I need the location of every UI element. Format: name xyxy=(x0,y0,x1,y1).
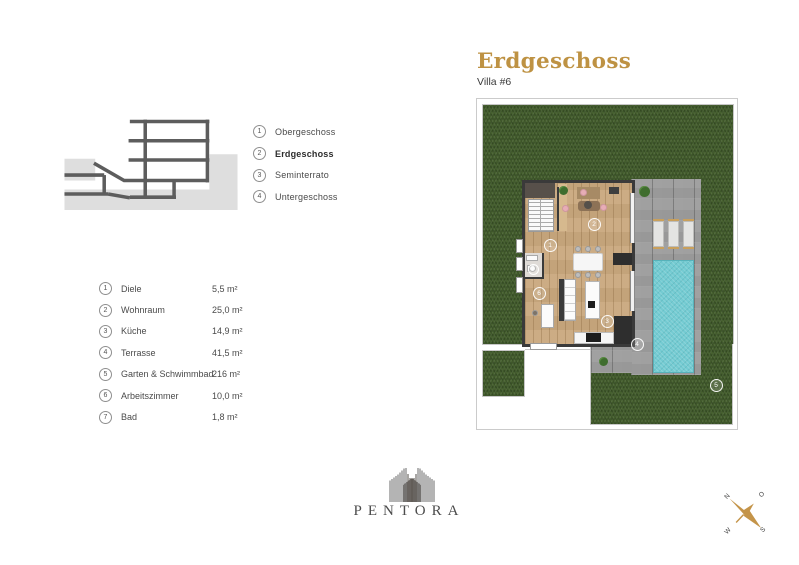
house-outline xyxy=(522,180,635,347)
storage-room xyxy=(525,183,555,198)
floor-number-badge: 4 xyxy=(253,190,266,203)
room-area: 14,9 m² xyxy=(212,326,243,336)
dining-table xyxy=(573,253,603,271)
interior-wall xyxy=(557,187,559,231)
compass-o: O xyxy=(758,490,767,498)
potted-plant xyxy=(559,186,568,195)
floor-label: Seminterrato xyxy=(275,170,329,180)
room-number-badge: 4 xyxy=(99,346,112,359)
window xyxy=(516,257,523,271)
room-row-diele: 1 Diele 5,5 m² xyxy=(99,278,259,299)
floorplan: 1 2 3 4 5 6 7 xyxy=(476,98,738,430)
room-row-arbeitszimmer: 6 Arbeitszimmer 10,0 m² xyxy=(99,385,259,406)
floor-item-obergeschoss[interactable]: 1 Obergeschoss xyxy=(253,121,338,143)
building-cross-section-diagram xyxy=(64,110,238,210)
coffee-table xyxy=(584,201,592,209)
staircase xyxy=(528,199,554,232)
room-row-garten: 5 Garten & Schwimmbad 216 m² xyxy=(99,364,259,385)
room-row-terrasse: 4 Terrasse 41,5 m² xyxy=(99,342,259,363)
plan-marker-1: 1 xyxy=(544,239,557,252)
pink-chair xyxy=(580,189,587,196)
plan-marker-2: 2 xyxy=(588,218,601,231)
sliding-door-window xyxy=(630,193,635,243)
sun-lounger xyxy=(683,219,694,249)
room-name: Bad xyxy=(121,412,137,422)
dining-chair xyxy=(575,272,581,278)
floor-item-erdgeschoss[interactable]: 2 Erdgeschoss xyxy=(253,143,338,165)
window xyxy=(516,239,523,253)
floor-item-seminterrato[interactable]: 3 Seminterrato xyxy=(253,164,338,186)
garden-grass-strip xyxy=(482,350,525,397)
room-number-badge: 6 xyxy=(99,389,112,402)
wall-pier xyxy=(613,253,632,265)
room-number-badge: 7 xyxy=(99,411,112,424)
floor-number-badge: 1 xyxy=(253,125,266,138)
room-area: 10,0 m² xyxy=(212,391,243,401)
sideboard xyxy=(609,187,619,194)
sun-lounger xyxy=(653,219,664,249)
potted-plant xyxy=(639,186,650,197)
room-name: Garten & Schwimmbad xyxy=(121,369,214,379)
floor-navigation: 1 Obergeschoss 2 Erdgeschoss 3 Seminterr… xyxy=(253,121,338,208)
pentora-logo-icon xyxy=(388,468,436,502)
room-name: Küche xyxy=(121,326,147,336)
dining-chair xyxy=(585,246,591,252)
entrance-threshold xyxy=(530,343,557,350)
kitchen-island xyxy=(585,281,600,319)
room-number-badge: 1 xyxy=(99,282,112,295)
cooktop xyxy=(588,301,595,308)
compass-s: S xyxy=(759,526,768,534)
sliding-door-window xyxy=(630,271,635,311)
floor-label: Obergeschoss xyxy=(275,127,335,137)
plan-marker-7: 7 xyxy=(528,264,539,275)
room-row-wohnraum: 2 Wohnraum 25,0 m² xyxy=(99,299,259,320)
room-number-badge: 3 xyxy=(99,325,112,338)
page-title: Erdgeschoss xyxy=(477,49,631,74)
wall-corner-mass xyxy=(614,316,632,344)
pink-pouf xyxy=(562,205,569,212)
page-subtitle: Villa #6 xyxy=(477,76,511,88)
room-name: Terrasse xyxy=(121,348,156,358)
plan-marker-4: 4 xyxy=(631,338,644,351)
floor-number-badge: 3 xyxy=(253,169,266,182)
room-area: 25,0 m² xyxy=(212,305,243,315)
room-legend: 1 Diele 5,5 m² 2 Wohnraum 25,0 m² 3 Küch… xyxy=(99,278,259,428)
room-area: 41,5 m² xyxy=(212,348,243,358)
terrace-paving-lower xyxy=(591,347,632,373)
brochure-page: 1 Obergeschoss 2 Erdgeschoss 3 Seminterr… xyxy=(0,0,799,565)
room-area: 5,5 m² xyxy=(212,284,238,294)
potted-plant xyxy=(599,357,608,366)
dining-chair xyxy=(595,246,601,252)
sink xyxy=(526,255,538,261)
dining-chair xyxy=(595,272,601,278)
room-row-bad: 7 Bad 1,8 m² xyxy=(99,406,259,427)
dining-chair xyxy=(585,272,591,278)
room-number-badge: 5 xyxy=(99,368,112,381)
office-chair xyxy=(532,310,538,316)
floor-label: Untergeschoss xyxy=(275,192,338,202)
floor-item-untergeschoss[interactable]: 4 Untergeschoss xyxy=(253,186,338,208)
room-name: Wohnraum xyxy=(121,305,165,315)
oven xyxy=(586,333,601,342)
compass-w: W xyxy=(723,526,733,536)
room-name: Arbeitszimmer xyxy=(121,391,179,401)
plan-marker-5: 5 xyxy=(710,379,723,392)
window xyxy=(516,277,523,293)
room-number-badge: 2 xyxy=(99,304,112,317)
sun-lounger xyxy=(668,219,679,249)
room-row-kueche: 3 Küche 14,9 m² xyxy=(99,321,259,342)
pentora-wordmark: PENTORA xyxy=(339,503,479,520)
plan-marker-3: 3 xyxy=(601,315,614,328)
floor-label: Erdgeschoss xyxy=(275,149,334,159)
room-area: 1,8 m² xyxy=(212,412,238,422)
compass-icon: N O S W xyxy=(713,481,777,545)
room-area: 216 m² xyxy=(212,369,240,379)
room-name: Diele xyxy=(121,284,142,294)
dining-chair xyxy=(575,246,581,252)
floor-number-badge: 2 xyxy=(253,147,266,160)
swimming-pool xyxy=(653,260,694,373)
tall-cabinet xyxy=(564,279,576,321)
pink-pouf xyxy=(600,204,607,211)
office-desk xyxy=(541,304,554,328)
plan-marker-6: 6 xyxy=(533,287,546,300)
